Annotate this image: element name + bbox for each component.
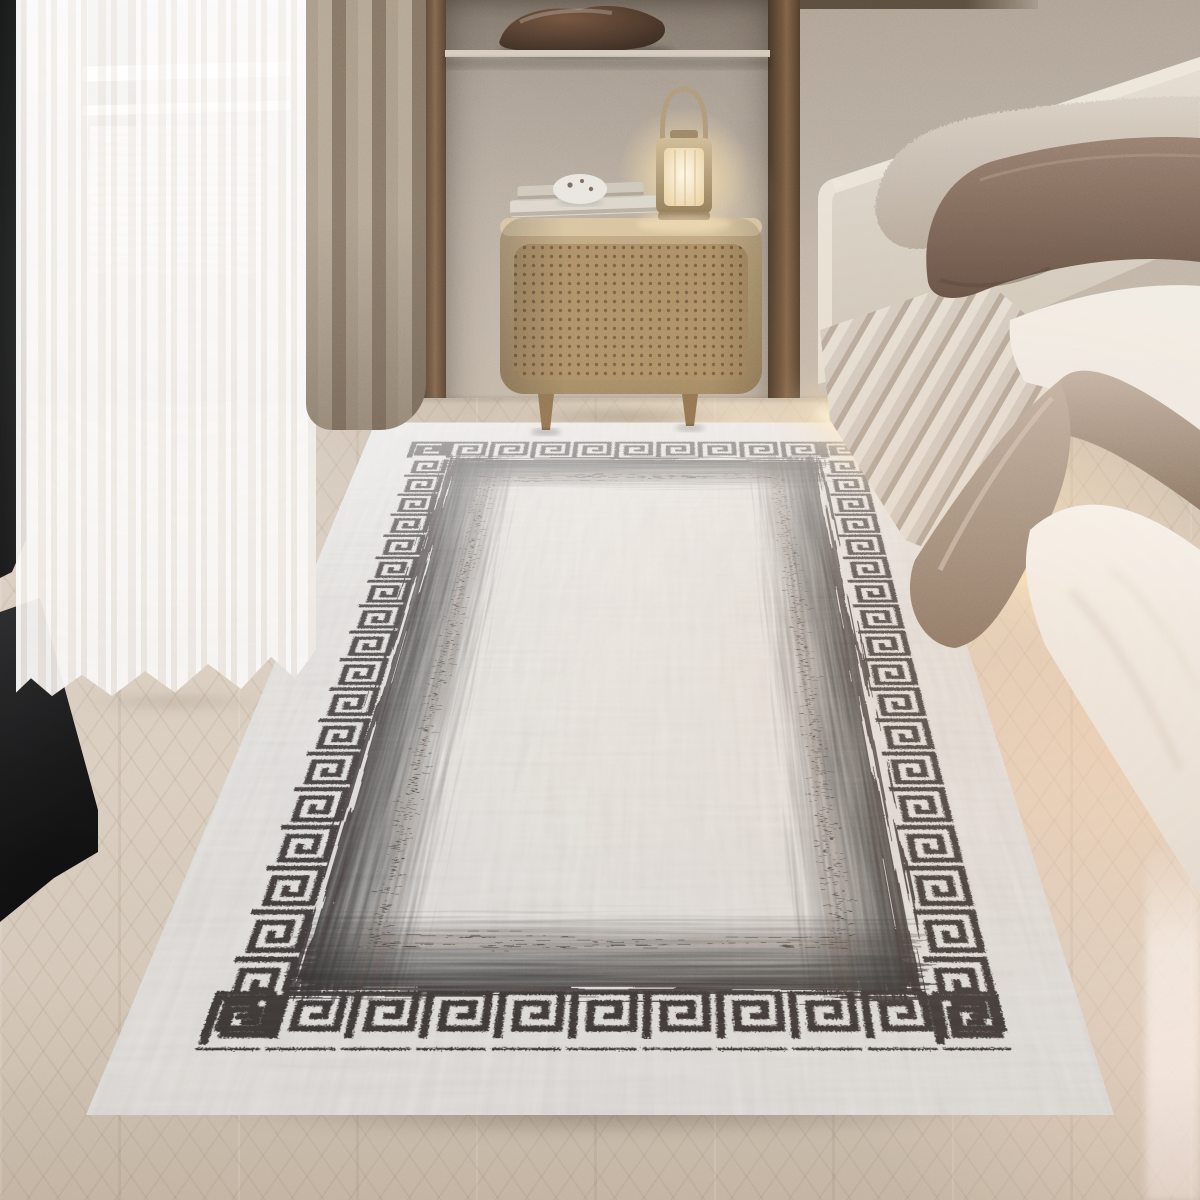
nightstand-group bbox=[430, 0, 780, 450]
nightstand-leg bbox=[682, 394, 698, 426]
bed-group bbox=[780, 30, 1200, 950]
duvet bbox=[1026, 505, 1200, 895]
sheer-curtain bbox=[16, 0, 316, 714]
nightstand bbox=[500, 218, 762, 436]
nightstand-leg bbox=[538, 394, 554, 430]
curtain-panel bbox=[306, 0, 426, 430]
niche-shelf bbox=[445, 50, 770, 57]
pebble-ornament bbox=[553, 174, 607, 206]
bedroom-scene bbox=[0, 0, 1200, 1200]
